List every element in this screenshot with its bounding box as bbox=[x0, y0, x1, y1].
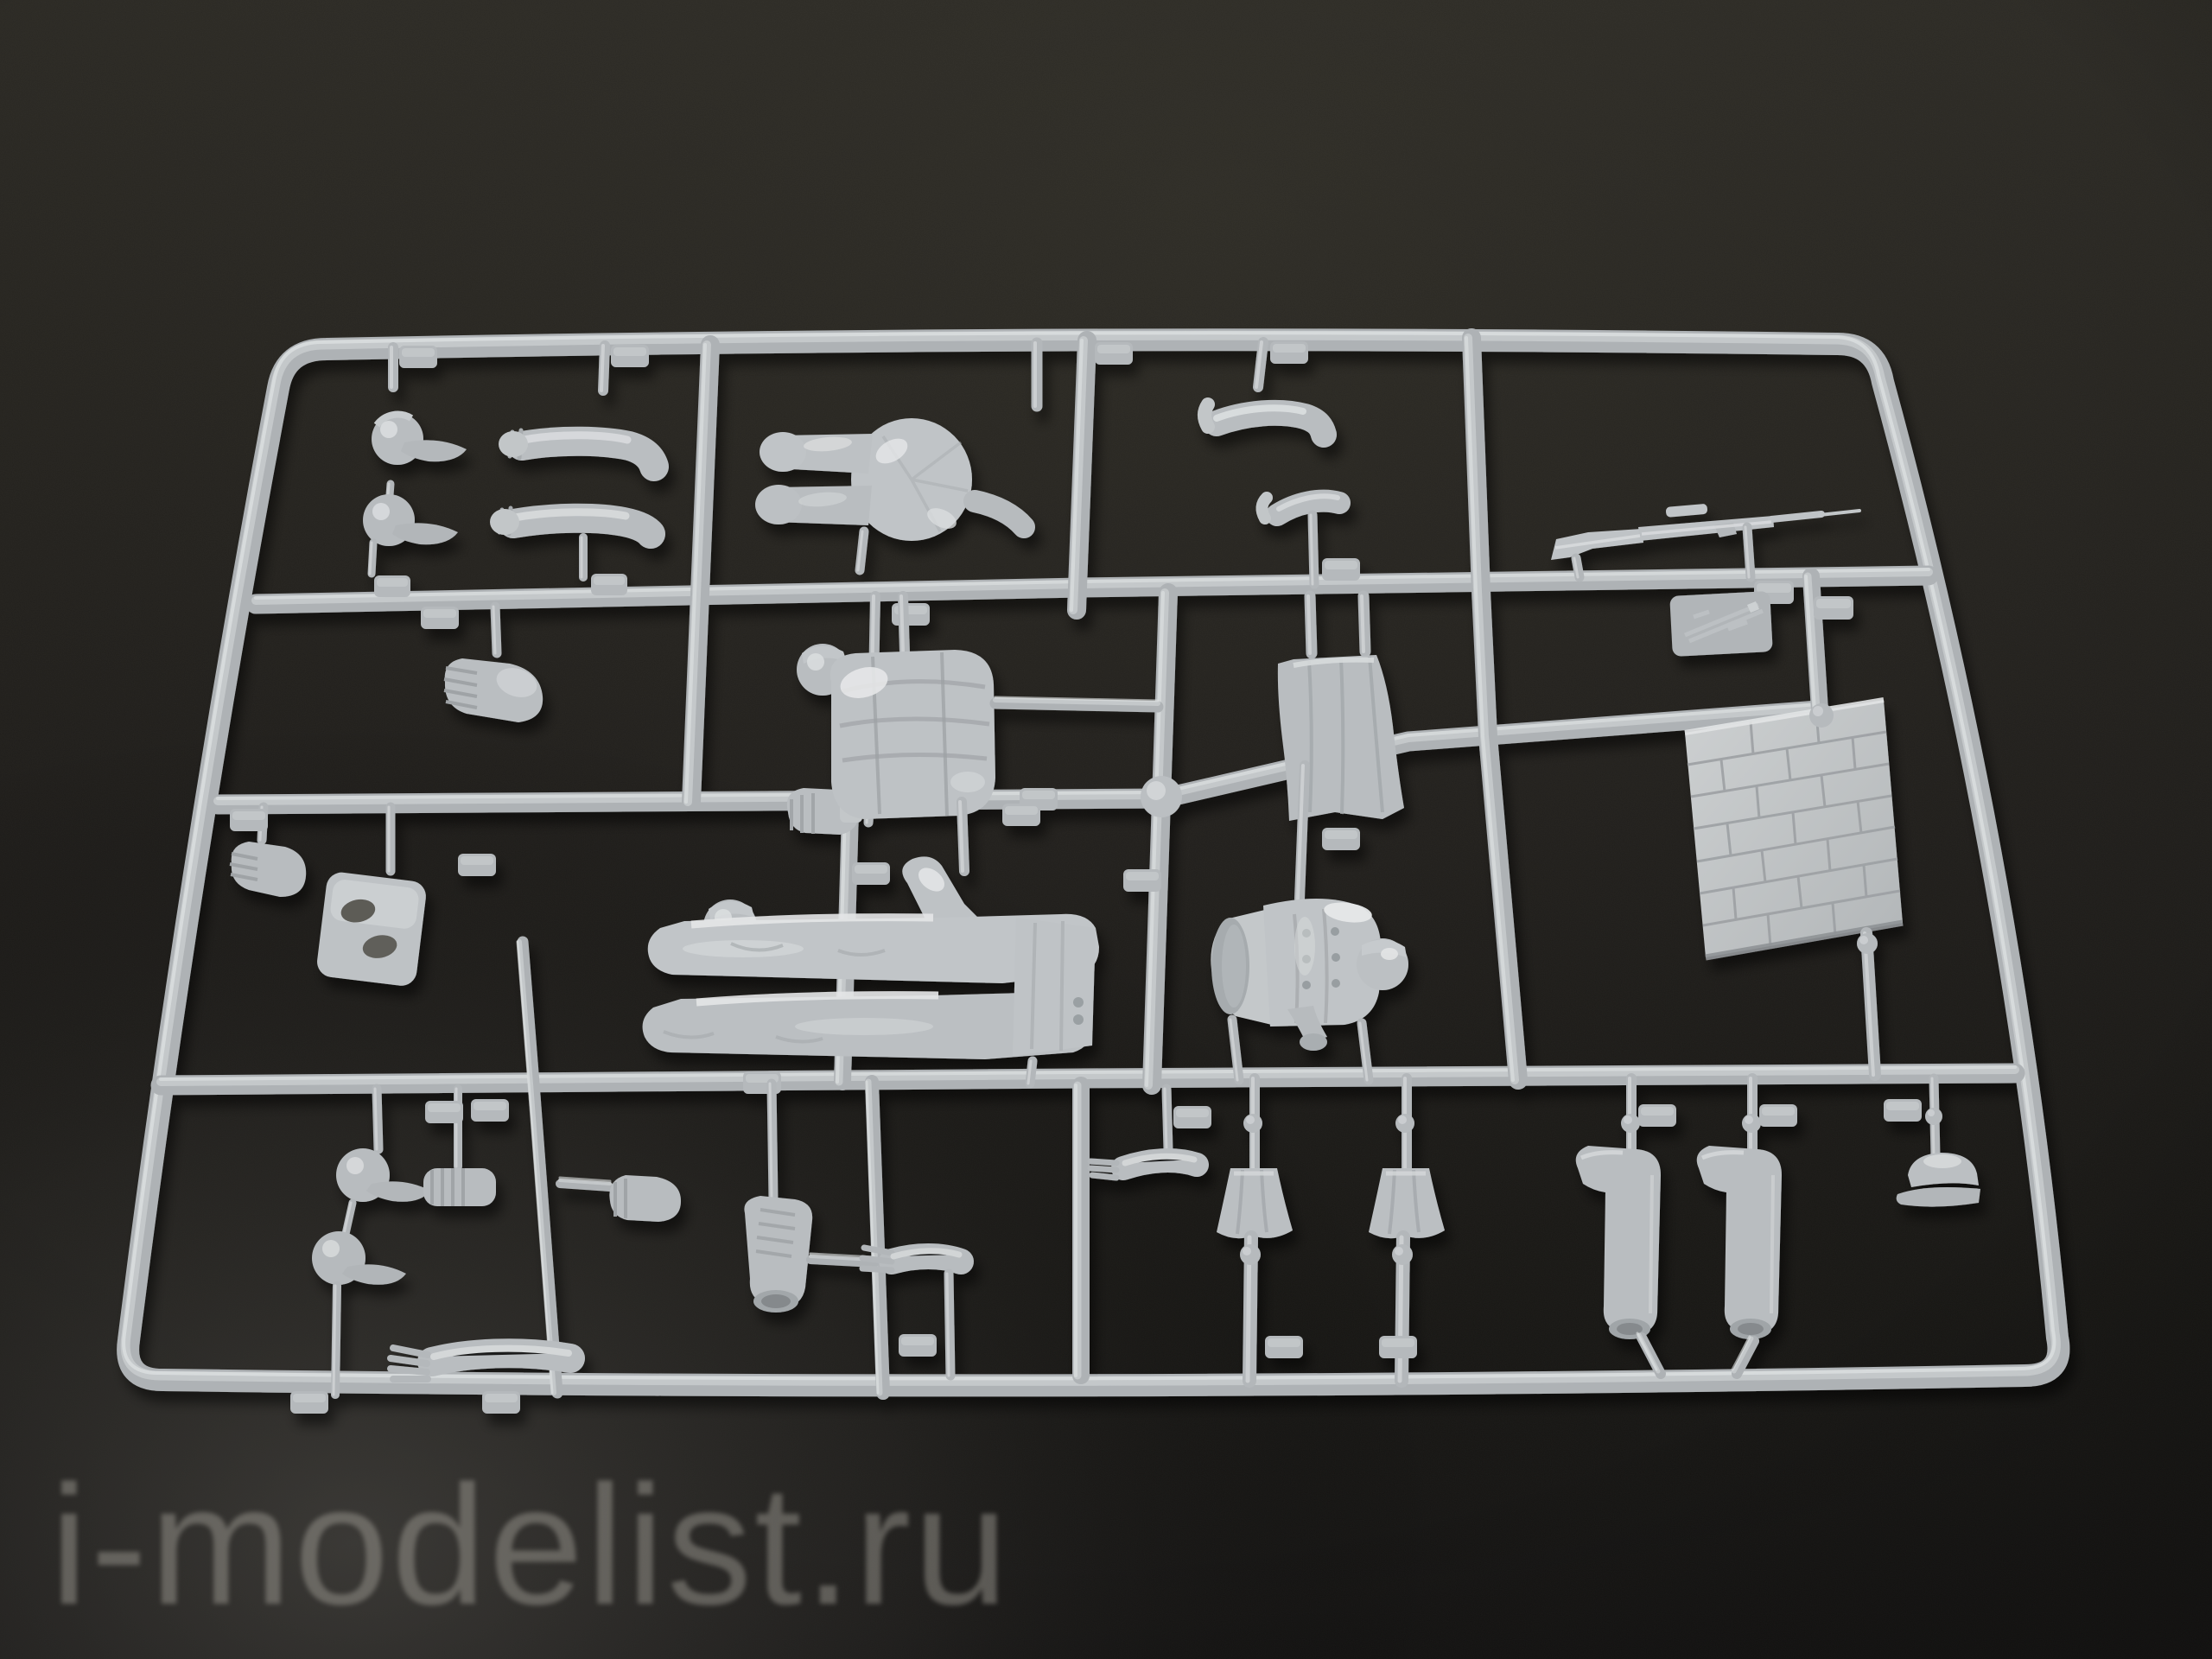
svg-text:i-modelist.ru: i-modelist.ru bbox=[50, 1450, 1011, 1640]
